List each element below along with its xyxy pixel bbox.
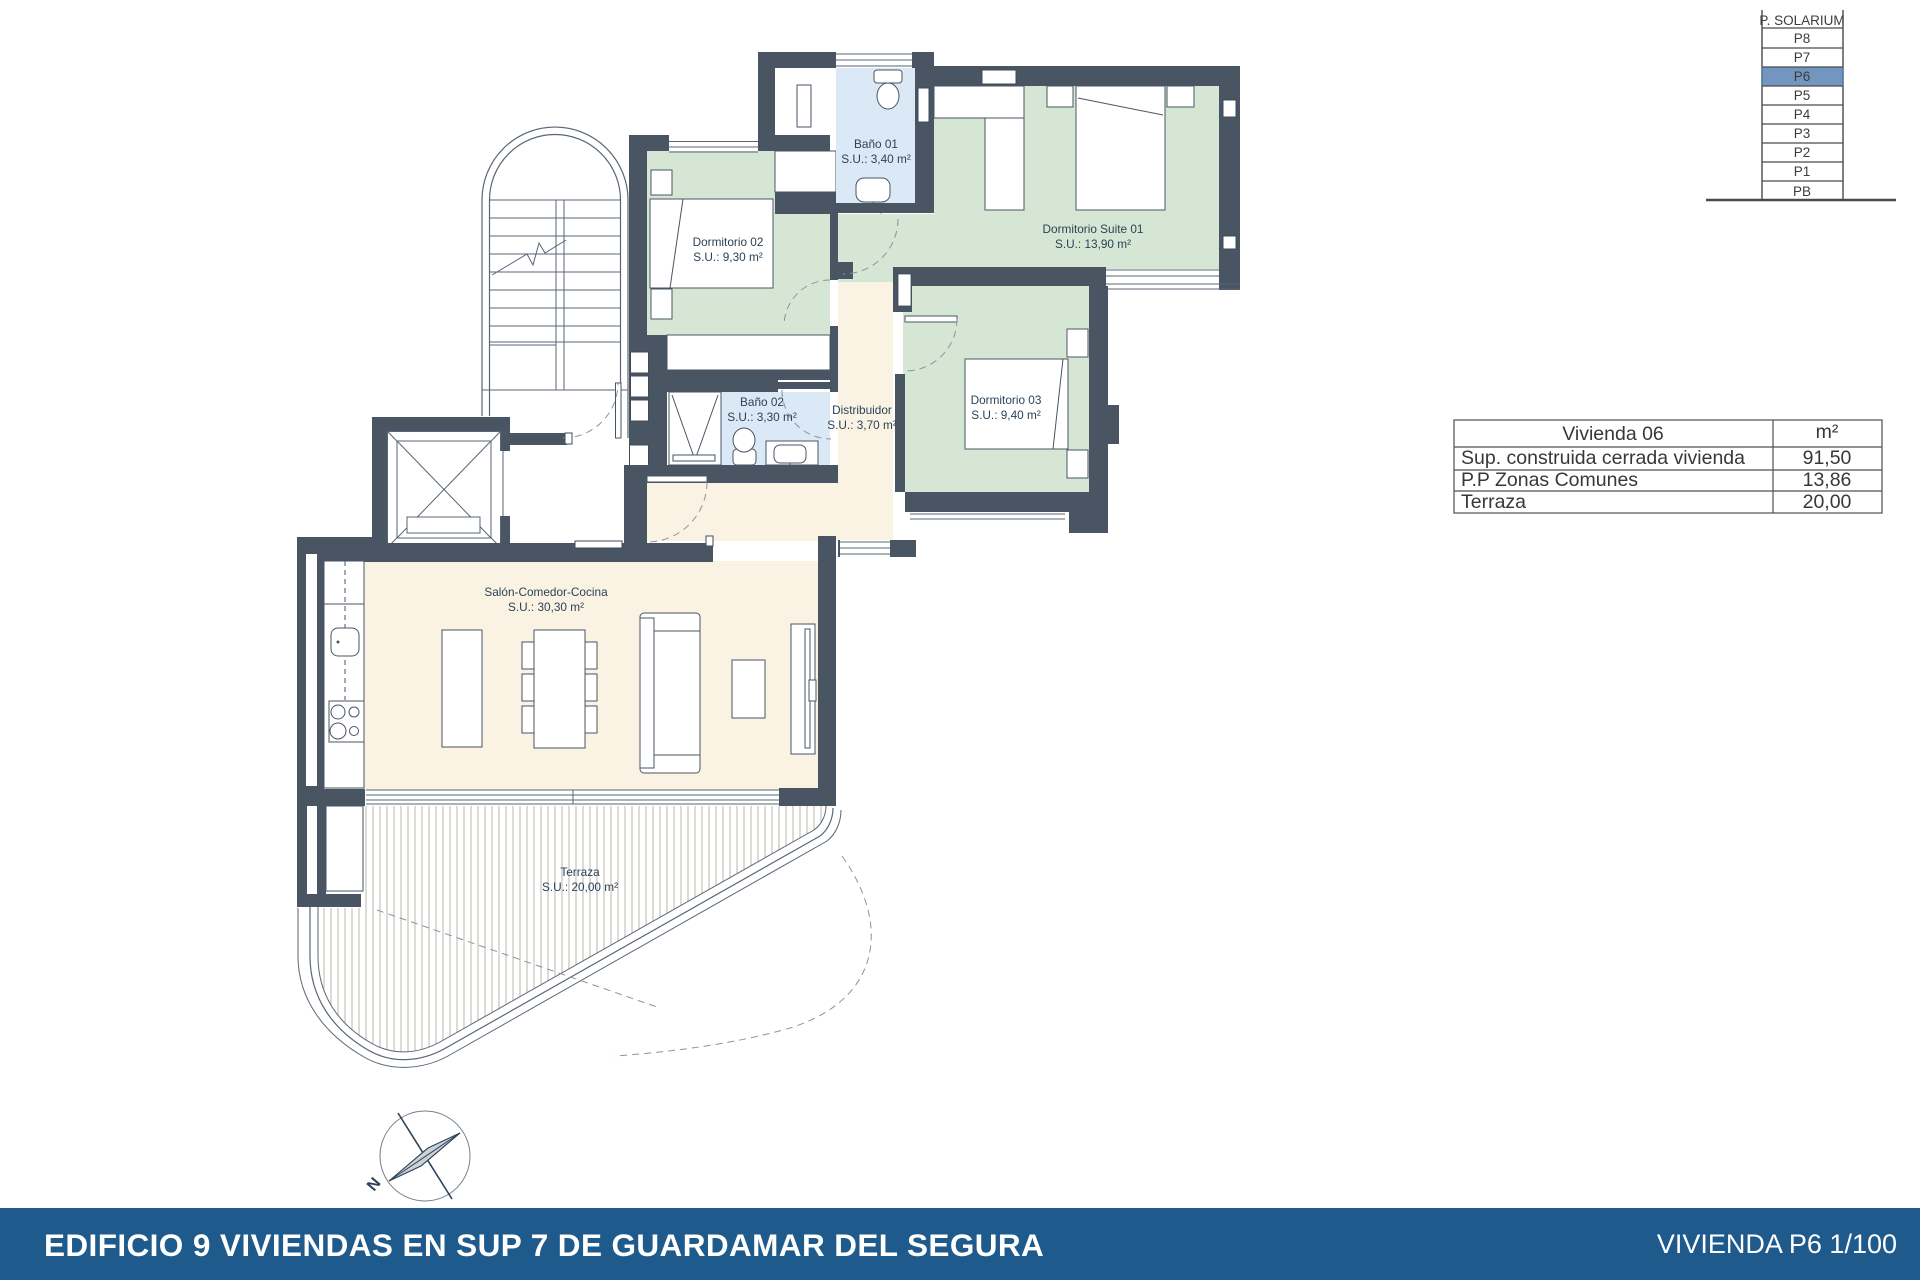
svg-text:Terraza: Terraza xyxy=(1461,491,1526,513)
svg-text:13,86: 13,86 xyxy=(1803,469,1852,491)
svg-text:S.U.: 3,70 m²: S.U.: 3,70 m² xyxy=(827,418,897,432)
svg-text:P8: P8 xyxy=(1794,31,1811,46)
svg-text:P2: P2 xyxy=(1794,145,1811,160)
svg-text:P5: P5 xyxy=(1794,88,1811,103)
svg-text:Baño 01: Baño 01 xyxy=(854,137,898,151)
svg-text:EDIFICIO 9 VIVIENDAS EN SUP 7: EDIFICIO 9 VIVIENDAS EN SUP 7 DE GUARDAM… xyxy=(44,1227,1044,1263)
svg-text:P4: P4 xyxy=(1794,107,1811,122)
svg-text:S.U.: 9,30 m²: S.U.: 9,30 m² xyxy=(693,250,763,264)
svg-text:Terraza: Terraza xyxy=(560,865,600,879)
svg-text:S.U.: 20,00 m²: S.U.: 20,00 m² xyxy=(542,880,618,894)
svg-text:P.P Zonas Comunes: P.P Zonas Comunes xyxy=(1461,469,1638,491)
svg-text:Baño 02: Baño 02 xyxy=(740,395,784,409)
svg-text:Dormitorio 03: Dormitorio 03 xyxy=(971,393,1042,407)
svg-text:S.U.: 3,40 m²: S.U.: 3,40 m² xyxy=(841,152,911,166)
svg-text:P6: P6 xyxy=(1794,69,1811,84)
svg-text:Dormitorio Suite 01: Dormitorio Suite 01 xyxy=(1043,222,1144,236)
svg-text:20,00: 20,00 xyxy=(1803,491,1852,513)
svg-text:PB: PB xyxy=(1793,184,1811,199)
svg-text:m²: m² xyxy=(1816,421,1839,443)
svg-text:VIVIENDA P6 1/100: VIVIENDA P6 1/100 xyxy=(1657,1229,1897,1259)
svg-text:S.U.: 3,30 m²: S.U.: 3,30 m² xyxy=(727,410,797,424)
svg-text:Salón-Comedor-Cocina: Salón-Comedor-Cocina xyxy=(484,585,608,599)
svg-text:S.U.: 13,90 m²: S.U.: 13,90 m² xyxy=(1055,237,1131,251)
svg-text:Vivienda 06: Vivienda 06 xyxy=(1562,423,1664,445)
svg-text:Sup. construida cerrada vivien: Sup. construida cerrada vivienda xyxy=(1461,447,1745,469)
svg-text:S.U.: 9,40 m²: S.U.: 9,40 m² xyxy=(971,408,1041,422)
svg-text:91,50: 91,50 xyxy=(1803,447,1852,469)
svg-text:S.U.: 30,30 m²: S.U.: 30,30 m² xyxy=(508,600,584,614)
svg-text:P1: P1 xyxy=(1794,164,1811,179)
svg-text:Dormitorio 02: Dormitorio 02 xyxy=(693,235,764,249)
svg-text:Distribuidor: Distribuidor xyxy=(832,403,892,417)
svg-text:P3: P3 xyxy=(1794,126,1811,141)
svg-text:P. SOLARIUM: P. SOLARIUM xyxy=(1759,13,1844,28)
svg-text:P7: P7 xyxy=(1794,50,1811,65)
